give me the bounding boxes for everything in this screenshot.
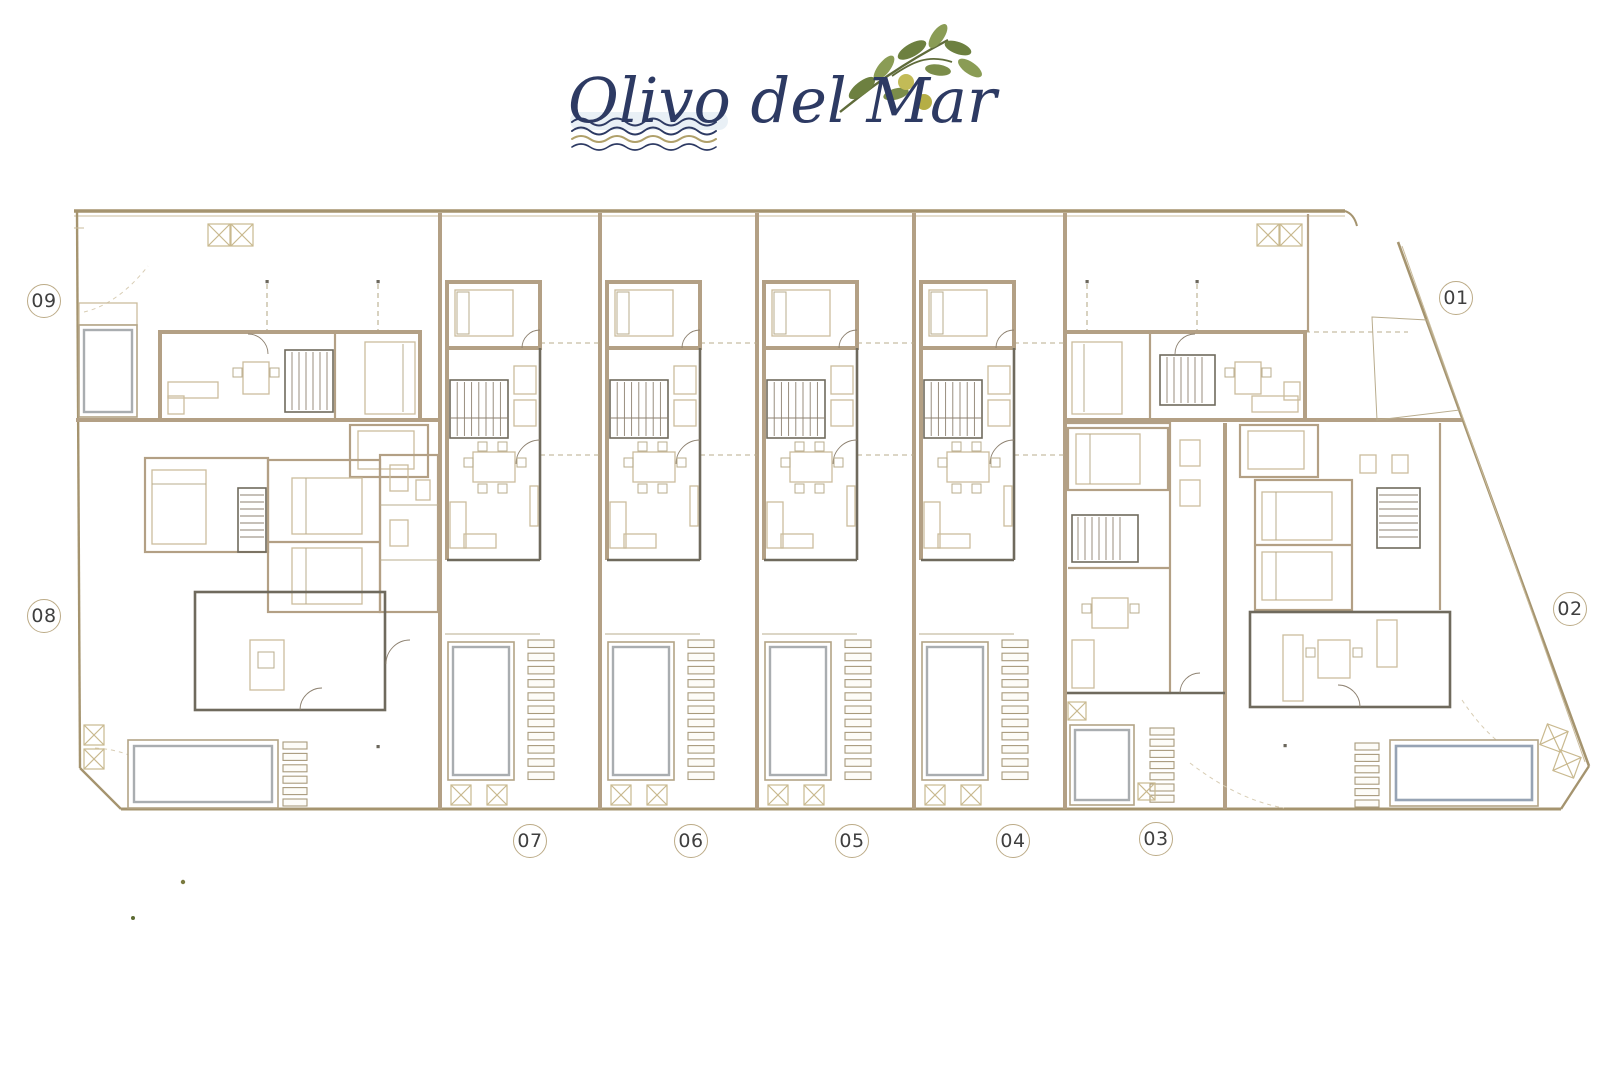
skylight-box (961, 785, 981, 805)
skylight-box (451, 785, 471, 805)
site-plan (0, 0, 1620, 1080)
unit-01-house (1065, 332, 1305, 420)
skylight-box (804, 785, 824, 805)
row-house-unit (605, 282, 714, 805)
skylight-box (925, 785, 945, 805)
unit-badge-05-label: 05 (839, 830, 864, 852)
skylight-box (768, 785, 788, 805)
skylight-box (231, 224, 253, 246)
unit-02-pool (1355, 724, 1581, 807)
skylight-box (487, 785, 507, 805)
unit-08-pool-steps (283, 742, 307, 806)
unit-badge-01-label: 01 (1443, 287, 1468, 309)
terrace-01 (1372, 317, 1460, 420)
unit-badge-08: 08 (27, 599, 61, 633)
unit-badge-04-label: 04 (1000, 830, 1025, 852)
unit-badge-07: 07 (513, 824, 547, 858)
unit-02-house (1240, 423, 1450, 707)
skylight-box (1553, 750, 1581, 778)
unit-badge-03: 03 (1139, 822, 1173, 856)
unit-badge-06: 06 (674, 824, 708, 858)
unit-badge-02: 02 (1553, 592, 1587, 626)
unit-09-house (160, 332, 420, 420)
unit-badge-09-label: 09 (31, 290, 56, 312)
unit-08-pool (128, 740, 307, 808)
skylight-box (84, 749, 104, 769)
unit-09-pool (79, 303, 137, 417)
unit-badge-09: 09 (27, 284, 61, 318)
skylight-box (208, 224, 230, 246)
unit-badge-08-label: 08 (31, 605, 56, 627)
unit-02-pool-steps (1355, 743, 1379, 807)
unit-badge-03-label: 03 (1143, 828, 1168, 850)
skylight-box (1280, 224, 1302, 246)
unit-badge-01: 01 (1439, 281, 1473, 315)
skylight-box (611, 785, 631, 805)
unit-badge-06-label: 06 (678, 830, 703, 852)
unit-badge-07-label: 07 (517, 830, 542, 852)
row-house-unit (919, 282, 1028, 805)
unit-badge-04: 04 (996, 824, 1030, 858)
row-house-unit (445, 282, 554, 805)
row-house-unit (762, 282, 871, 805)
unit-badge-05: 05 (835, 824, 869, 858)
skylight-box (84, 725, 104, 745)
unit-03-garden (1068, 702, 1174, 805)
garden-specks (131, 880, 185, 920)
skylight-box (1068, 702, 1086, 720)
unit-08-house (145, 425, 438, 710)
unit-03-house (1065, 423, 1225, 693)
skylight-box (1540, 724, 1568, 752)
skylight-box (1257, 224, 1279, 246)
skylight-box (647, 785, 667, 805)
row-house-strips (440, 213, 1065, 809)
unit-badge-02-label: 02 (1557, 598, 1582, 620)
floorplan-page: Olivo del Mar (0, 0, 1620, 1080)
